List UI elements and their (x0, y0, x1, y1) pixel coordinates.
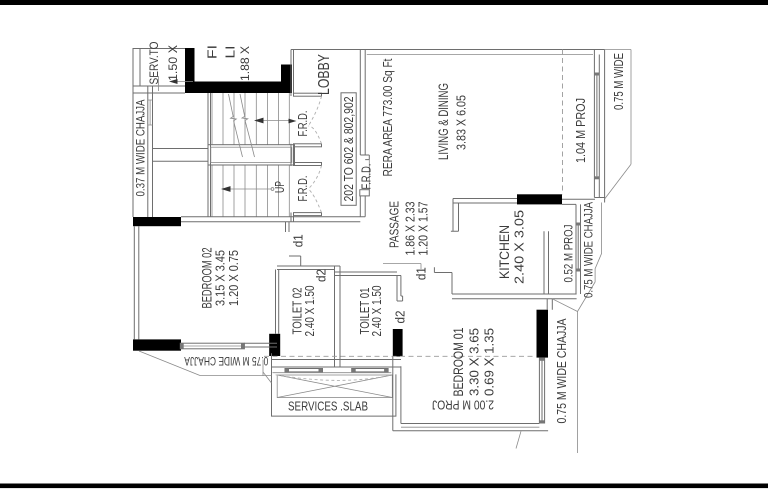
svg-text:0.75 M WIDE CHAJJA: 0.75 M WIDE CHAJJA (555, 318, 569, 424)
svg-text:1.20 X 1.57: 1.20 X 1.57 (416, 201, 430, 255)
svg-text:0.37 M WIDE CHAJJA: 0.37 M WIDE CHAJJA (134, 100, 148, 197)
svg-text:SERV.TO: SERV.TO (149, 41, 161, 84)
svg-text:SERVICES .SLAB: SERVICES .SLAB (288, 399, 368, 414)
svg-text:UP: UP (273, 181, 287, 193)
svg-text:0.75 M WIDE CHAJJA: 0.75 M WIDE CHAJJA (184, 354, 268, 368)
svg-text:KITCHEN: KITCHEN (497, 225, 512, 279)
svg-text:1.88 X: 1.88 X (238, 46, 252, 81)
svg-text:d1: d1 (415, 267, 429, 280)
svg-text:d1: d1 (292, 234, 306, 247)
svg-text:3.83 X 6.05: 3.83 X 6.05 (454, 95, 469, 150)
svg-text:LI: LI (223, 46, 237, 59)
svg-text:3.30 X 3.65: 3.30 X 3.65 (466, 328, 481, 396)
svg-text:0.52 M PROJ: 0.52 M PROJ (562, 225, 576, 283)
svg-text:1.04 M PROJ: 1.04 M PROJ (574, 98, 588, 163)
svg-text:2.40 X 1.50: 2.40 X 1.50 (302, 286, 317, 337)
svg-text:202 TO 602 & 802,902: 202 TO 602 & 802,902 (342, 96, 356, 201)
svg-text:d2: d2 (315, 269, 329, 282)
svg-text:PASSAGE: PASSAGE (387, 201, 401, 248)
svg-text:F.R.D.: F.R.D. (359, 164, 373, 190)
svg-text:RERA AREA 773.00 Sq Ft: RERA AREA 773.00 Sq Ft (381, 58, 395, 176)
svg-text:LIVING & DINING: LIVING & DINING (436, 83, 451, 160)
svg-text:FI: FI (205, 45, 219, 59)
svg-text:LOBBY: LOBBY (316, 54, 333, 95)
svg-text:1.20 X 0.75: 1.20 X 0.75 (226, 250, 241, 306)
svg-text:0.75 M WIDE CHAJJA: 0.75 M WIDE CHAJJA (582, 202, 596, 298)
svg-text:2.40 X 3.05: 2.40 X 3.05 (512, 210, 527, 284)
svg-text:0.75 M WIDE: 0.75 M WIDE (612, 53, 626, 110)
svg-text:1.86 X 2.33: 1.86 X 2.33 (403, 201, 417, 255)
svg-text:2.40 X 1.50: 2.40 X 1.50 (369, 286, 384, 337)
svg-text:2.00 M PROJ: 2.00 M PROJ (432, 397, 494, 412)
svg-text:1.50 X: 1.50 X (168, 45, 180, 81)
svg-text:d2: d2 (393, 310, 407, 323)
svg-text:F.R.D.: F.R.D. (295, 176, 310, 202)
svg-text:0.69 X 1.35: 0.69 X 1.35 (482, 328, 497, 396)
svg-text:F.R.D.: F.R.D. (295, 111, 310, 137)
svg-text:BEDROOM 01: BEDROOM 01 (451, 328, 466, 397)
